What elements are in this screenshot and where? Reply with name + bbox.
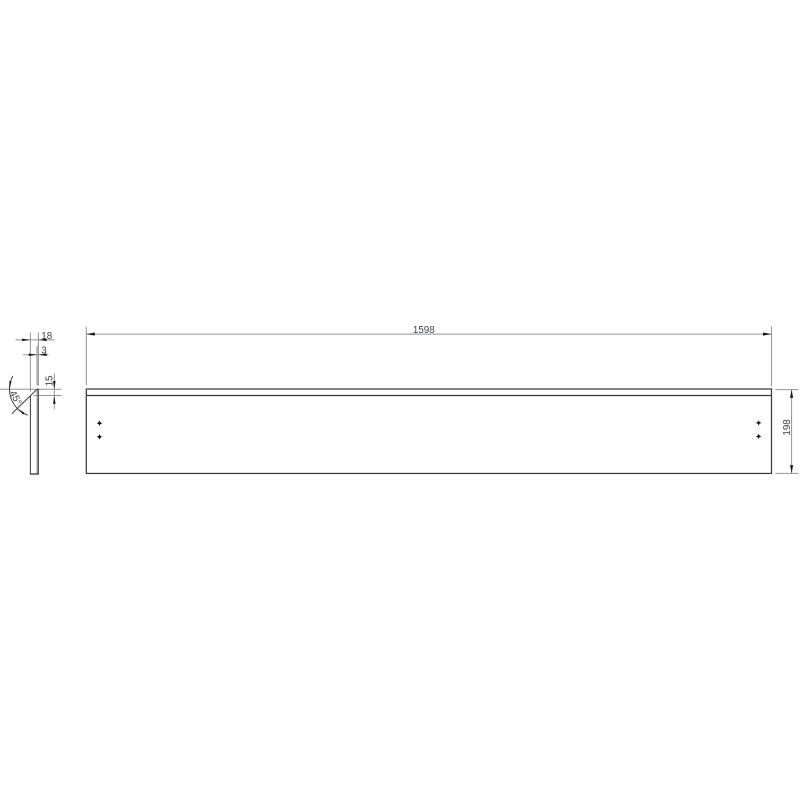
svg-text:15: 15 [45,375,56,386]
svg-text:18: 18 [41,331,52,342]
svg-text:3: 3 [41,345,47,356]
svg-text:1598: 1598 [413,325,435,336]
svg-text:198: 198 [782,419,793,436]
